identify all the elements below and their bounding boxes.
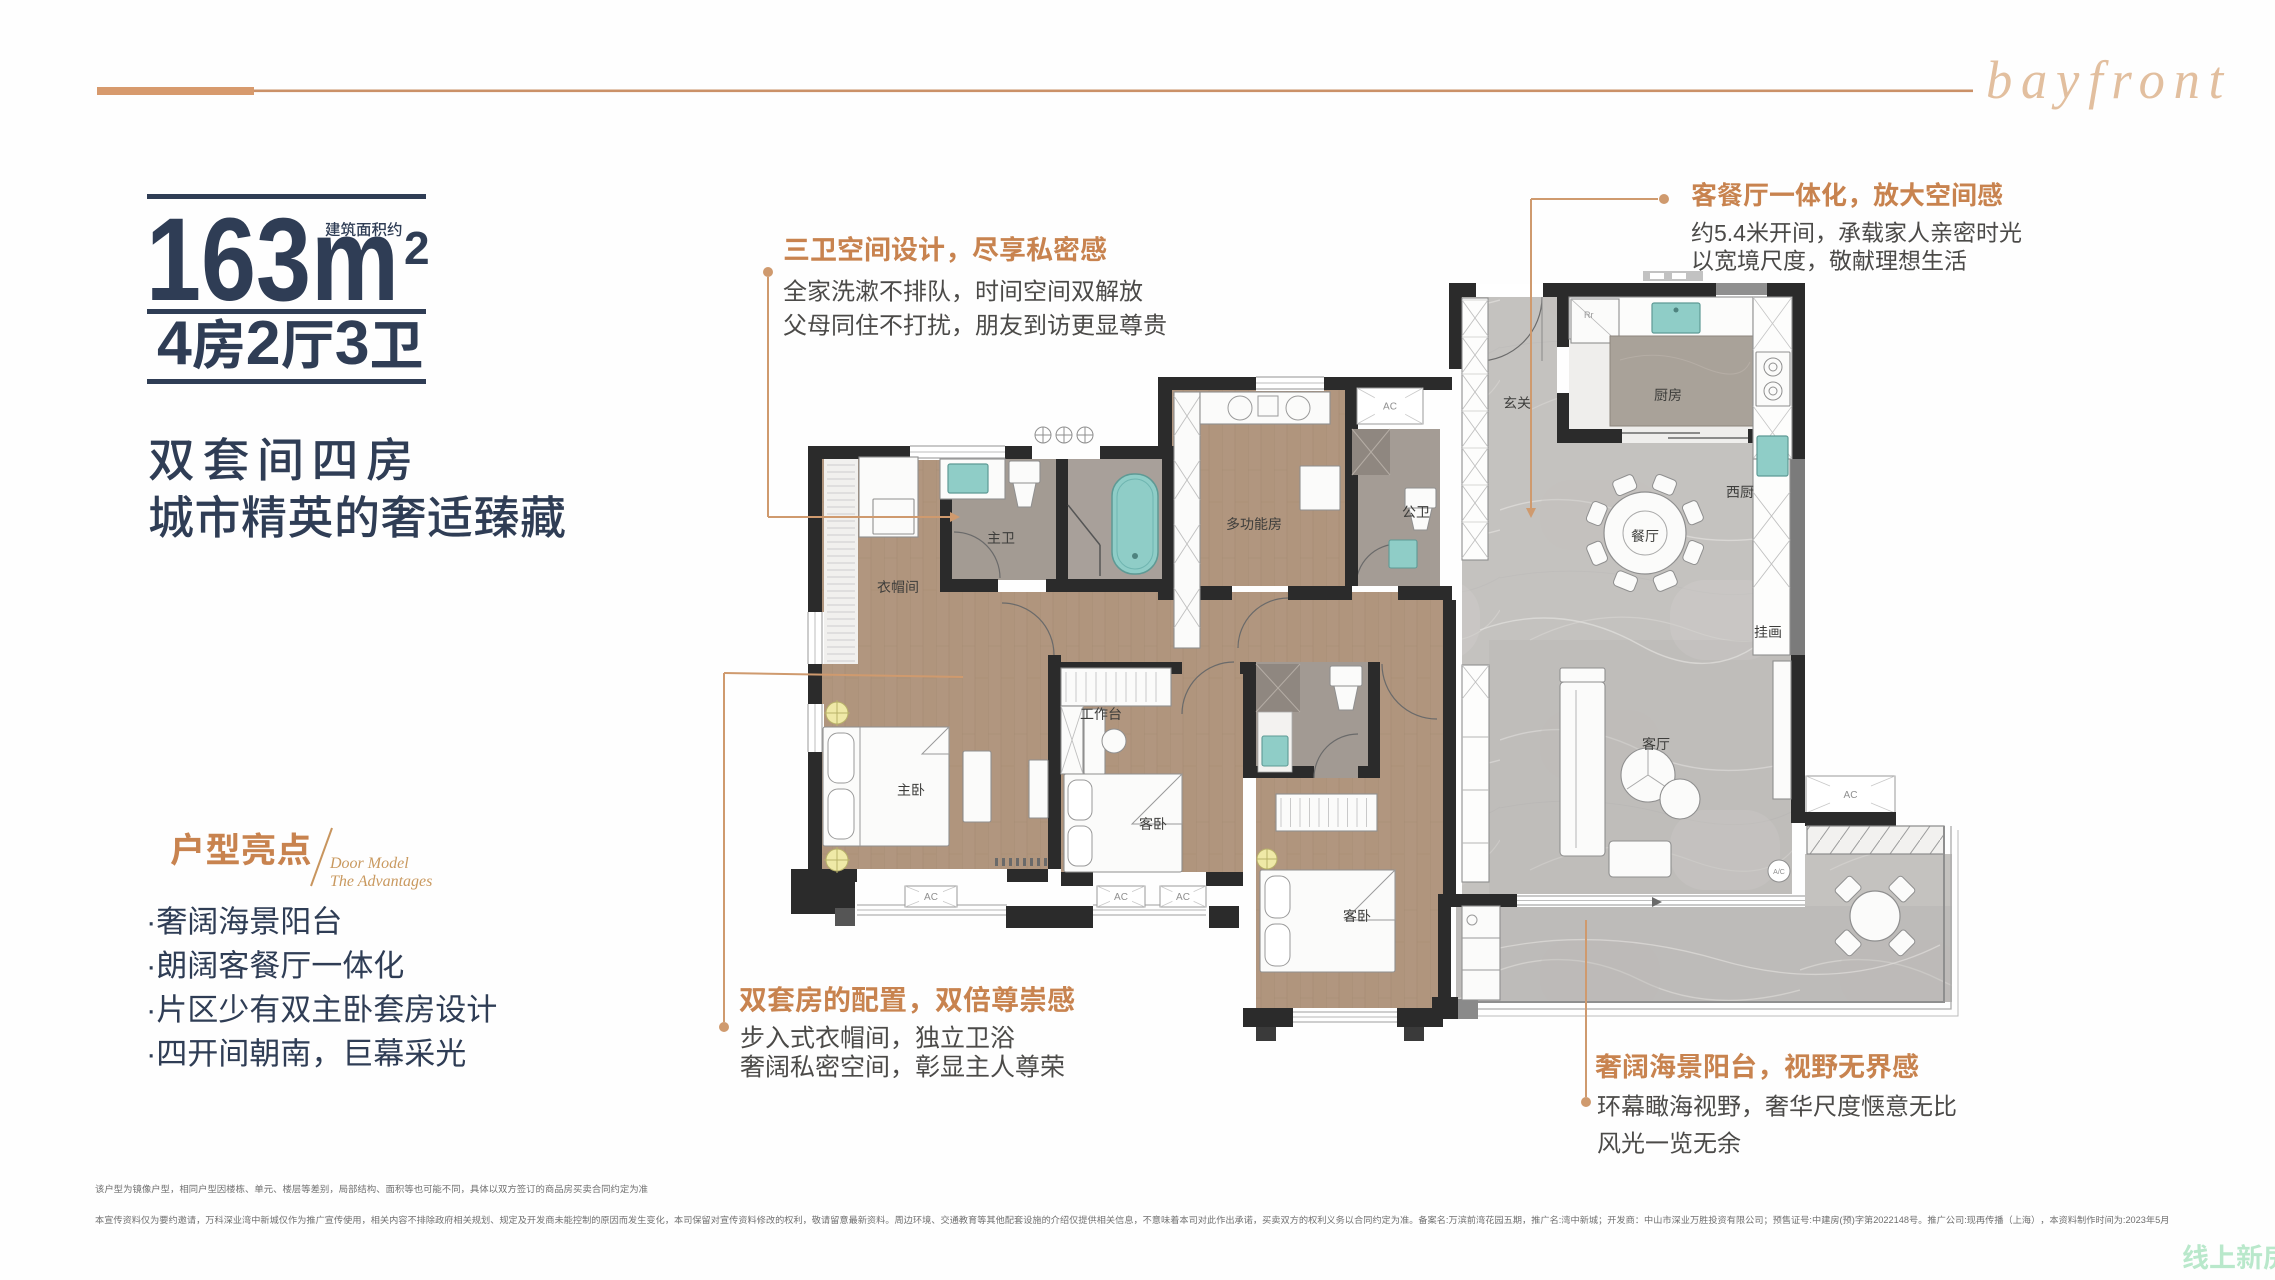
- svg-text::: :: [1559, 1215, 1562, 1225]
- svg-text:163m: 163m: [146, 194, 399, 326]
- svg-text:AC: AC: [1844, 790, 1858, 801]
- svg-text::: :: [1809, 1215, 1812, 1225]
- svg-text:AC: AC: [1114, 892, 1128, 903]
- svg-text:3: 3: [335, 308, 370, 378]
- svg-text:5.4: 5.4: [1714, 220, 1746, 246]
- svg-text:2022148: 2022148: [1873, 1215, 1909, 1225]
- svg-text:5: 5: [2155, 1215, 2160, 1225]
- svg-text:2: 2: [404, 222, 430, 274]
- svg-text:·: ·: [146, 948, 156, 983]
- svg-text:AC: AC: [1176, 892, 1190, 903]
- svg-text:2: 2: [246, 308, 281, 378]
- svg-text:Door Model: Door Model: [329, 855, 409, 872]
- svg-text:AC: AC: [924, 892, 938, 903]
- svg-text:·: ·: [146, 1036, 156, 1071]
- svg-text::: :: [1964, 1215, 1967, 1225]
- svg-text:A/C: A/C: [1773, 869, 1785, 876]
- svg-text:(: (: [1840, 1215, 1843, 1225]
- svg-text:·: ·: [146, 904, 156, 939]
- svg-text:The Advantages: The Advantages: [330, 873, 432, 890]
- svg-text::: :: [1446, 1215, 1449, 1225]
- svg-text::2023: :2023: [2123, 1215, 2146, 1225]
- svg-text:): ): [1852, 1215, 1855, 1225]
- svg-text:bayfront: bayfront: [1986, 50, 2232, 110]
- svg-text:4: 4: [157, 308, 192, 378]
- svg-text:AC: AC: [1383, 402, 1397, 413]
- svg-text:Rr: Rr: [1584, 310, 1594, 320]
- svg-text:·: ·: [146, 992, 156, 1027]
